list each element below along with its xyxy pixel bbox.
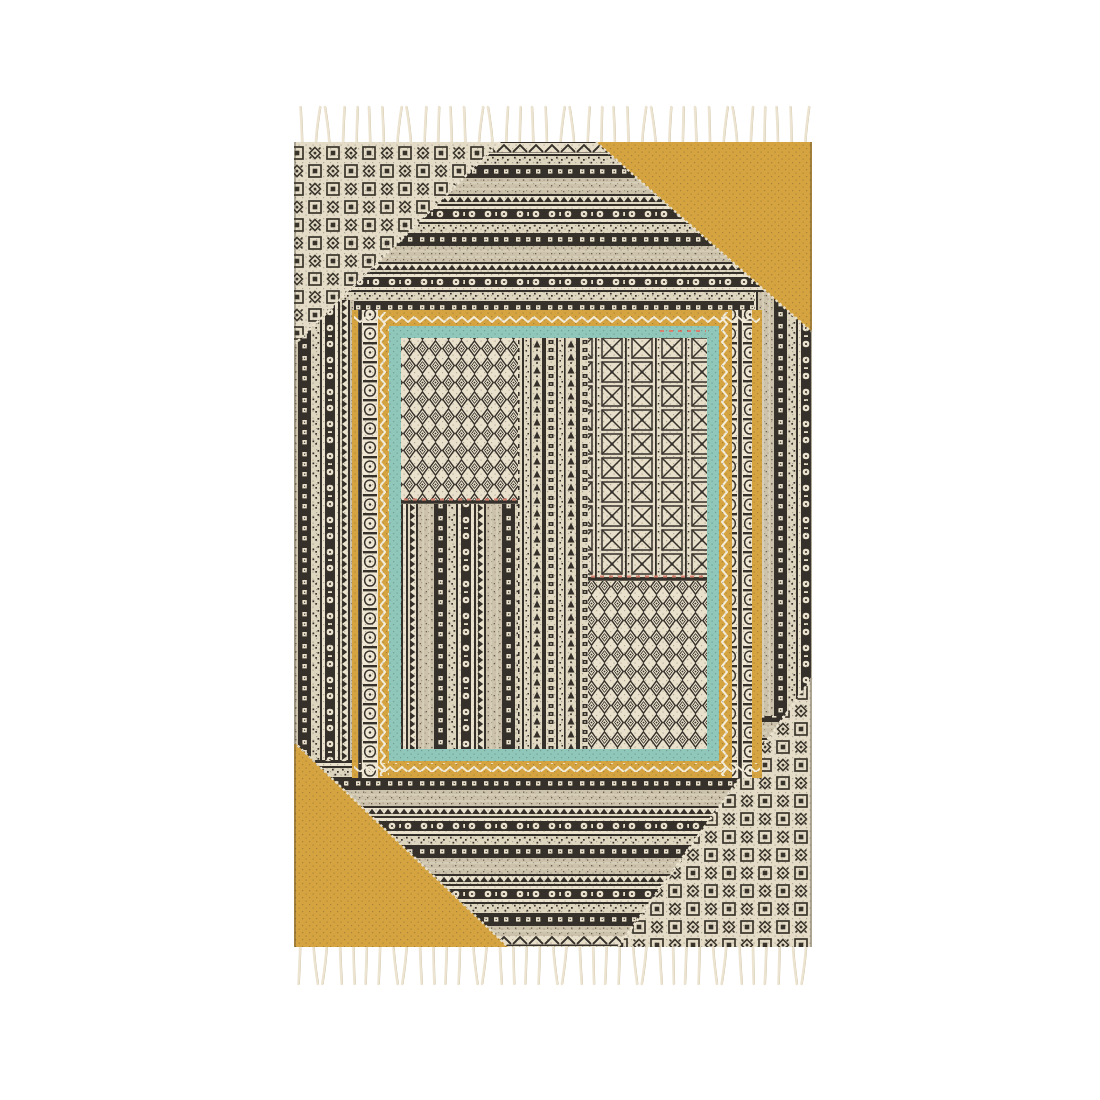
rug-body [294,142,812,947]
fringe-strand [445,945,446,984]
fringe-strand [464,107,465,144]
fringe-strand [753,945,754,984]
fringe-strand [433,945,434,984]
fringe-strand [525,945,526,984]
fringe-strand [356,107,357,144]
fringe-strand [369,107,370,144]
weave-texture-overlay [294,142,812,947]
fringe-strand [532,107,533,144]
fringe-strand [538,945,539,984]
fringe-strand [776,107,777,144]
fringe-strand [513,945,514,984]
fringe-strand [593,945,594,984]
fringe-strand [382,107,384,144]
fringe-strand [685,945,686,984]
fringe-strand [618,945,619,984]
fringe-strand [627,107,628,144]
fringe-strand [545,107,546,144]
fringe-strand [520,107,521,144]
fringe-strand [698,945,699,984]
fringe-strand [365,945,366,984]
rug-product-image [0,0,1100,1100]
fringe-strand [764,107,765,144]
product-photo [0,0,1100,1100]
fringe-strand [790,107,791,144]
fringe-strand [709,107,710,144]
fringe-strand [450,107,451,144]
fringe-strand [613,107,614,144]
fringe-strand [683,107,684,144]
fringe-strand [438,107,439,144]
fringe-strand [353,945,354,984]
fringe-strand [695,107,696,144]
fringe-strand [765,945,767,984]
fringe-strand [605,945,606,984]
fringe-strand [458,945,459,984]
fringe-strand [601,107,602,144]
fringe-strand [778,945,779,984]
fringe-strand [673,945,674,984]
